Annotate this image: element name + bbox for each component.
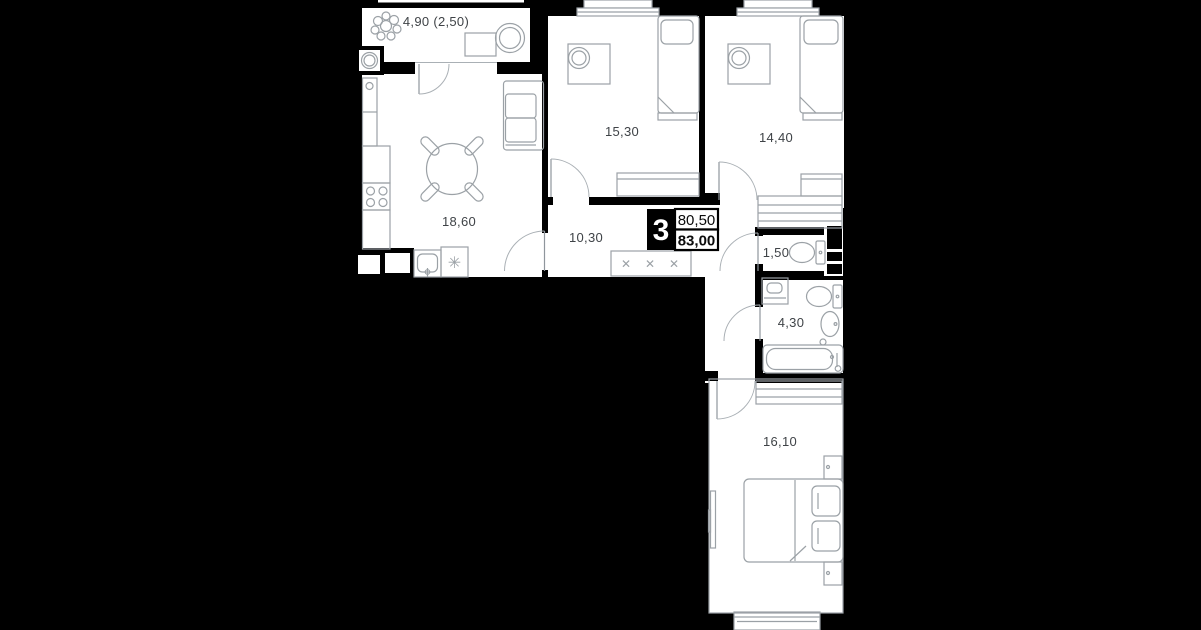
rooms-count: 3 bbox=[653, 214, 670, 247]
floor-plan: ✳ ✕ ✕ ✕ bbox=[0, 0, 1201, 630]
room-area-label-kitchen: 18,60 bbox=[442, 214, 476, 229]
room-area-label-bedroom2: 14,40 bbox=[759, 130, 793, 145]
washing-machine-icon bbox=[355, 46, 384, 75]
svg-text:✕: ✕ bbox=[621, 257, 631, 271]
room-area-label-bathroom: 4,30 bbox=[778, 315, 805, 330]
svg-text:✕: ✕ bbox=[669, 257, 679, 271]
room-area-label-balcony: 4,90 (2,50) bbox=[403, 14, 469, 29]
area-badge: 3 80,50 83,00 bbox=[647, 209, 718, 250]
room-area-label-wc: 1,50 bbox=[763, 245, 790, 260]
room-area-label-bedroom1: 15,30 bbox=[605, 124, 639, 139]
svg-text:✳: ✳ bbox=[448, 253, 461, 272]
window-bedroom3 bbox=[734, 612, 820, 630]
floor-plan-canvas: ✳ ✕ ✕ ✕ bbox=[0, 0, 1201, 630]
room-area-label-bedroom3: 16,10 bbox=[763, 434, 797, 449]
utility-shaft bbox=[824, 223, 843, 276]
room-area-label-hallway: 10,30 bbox=[569, 230, 603, 245]
area-living-value: 80,50 bbox=[678, 212, 716, 229]
window-bedroom1 bbox=[577, 0, 659, 16]
balcony-glazing bbox=[370, 0, 530, 8]
area-total-value: 83,00 bbox=[678, 233, 716, 250]
svg-text:✕: ✕ bbox=[645, 257, 655, 271]
window-bedroom2 bbox=[737, 0, 819, 16]
